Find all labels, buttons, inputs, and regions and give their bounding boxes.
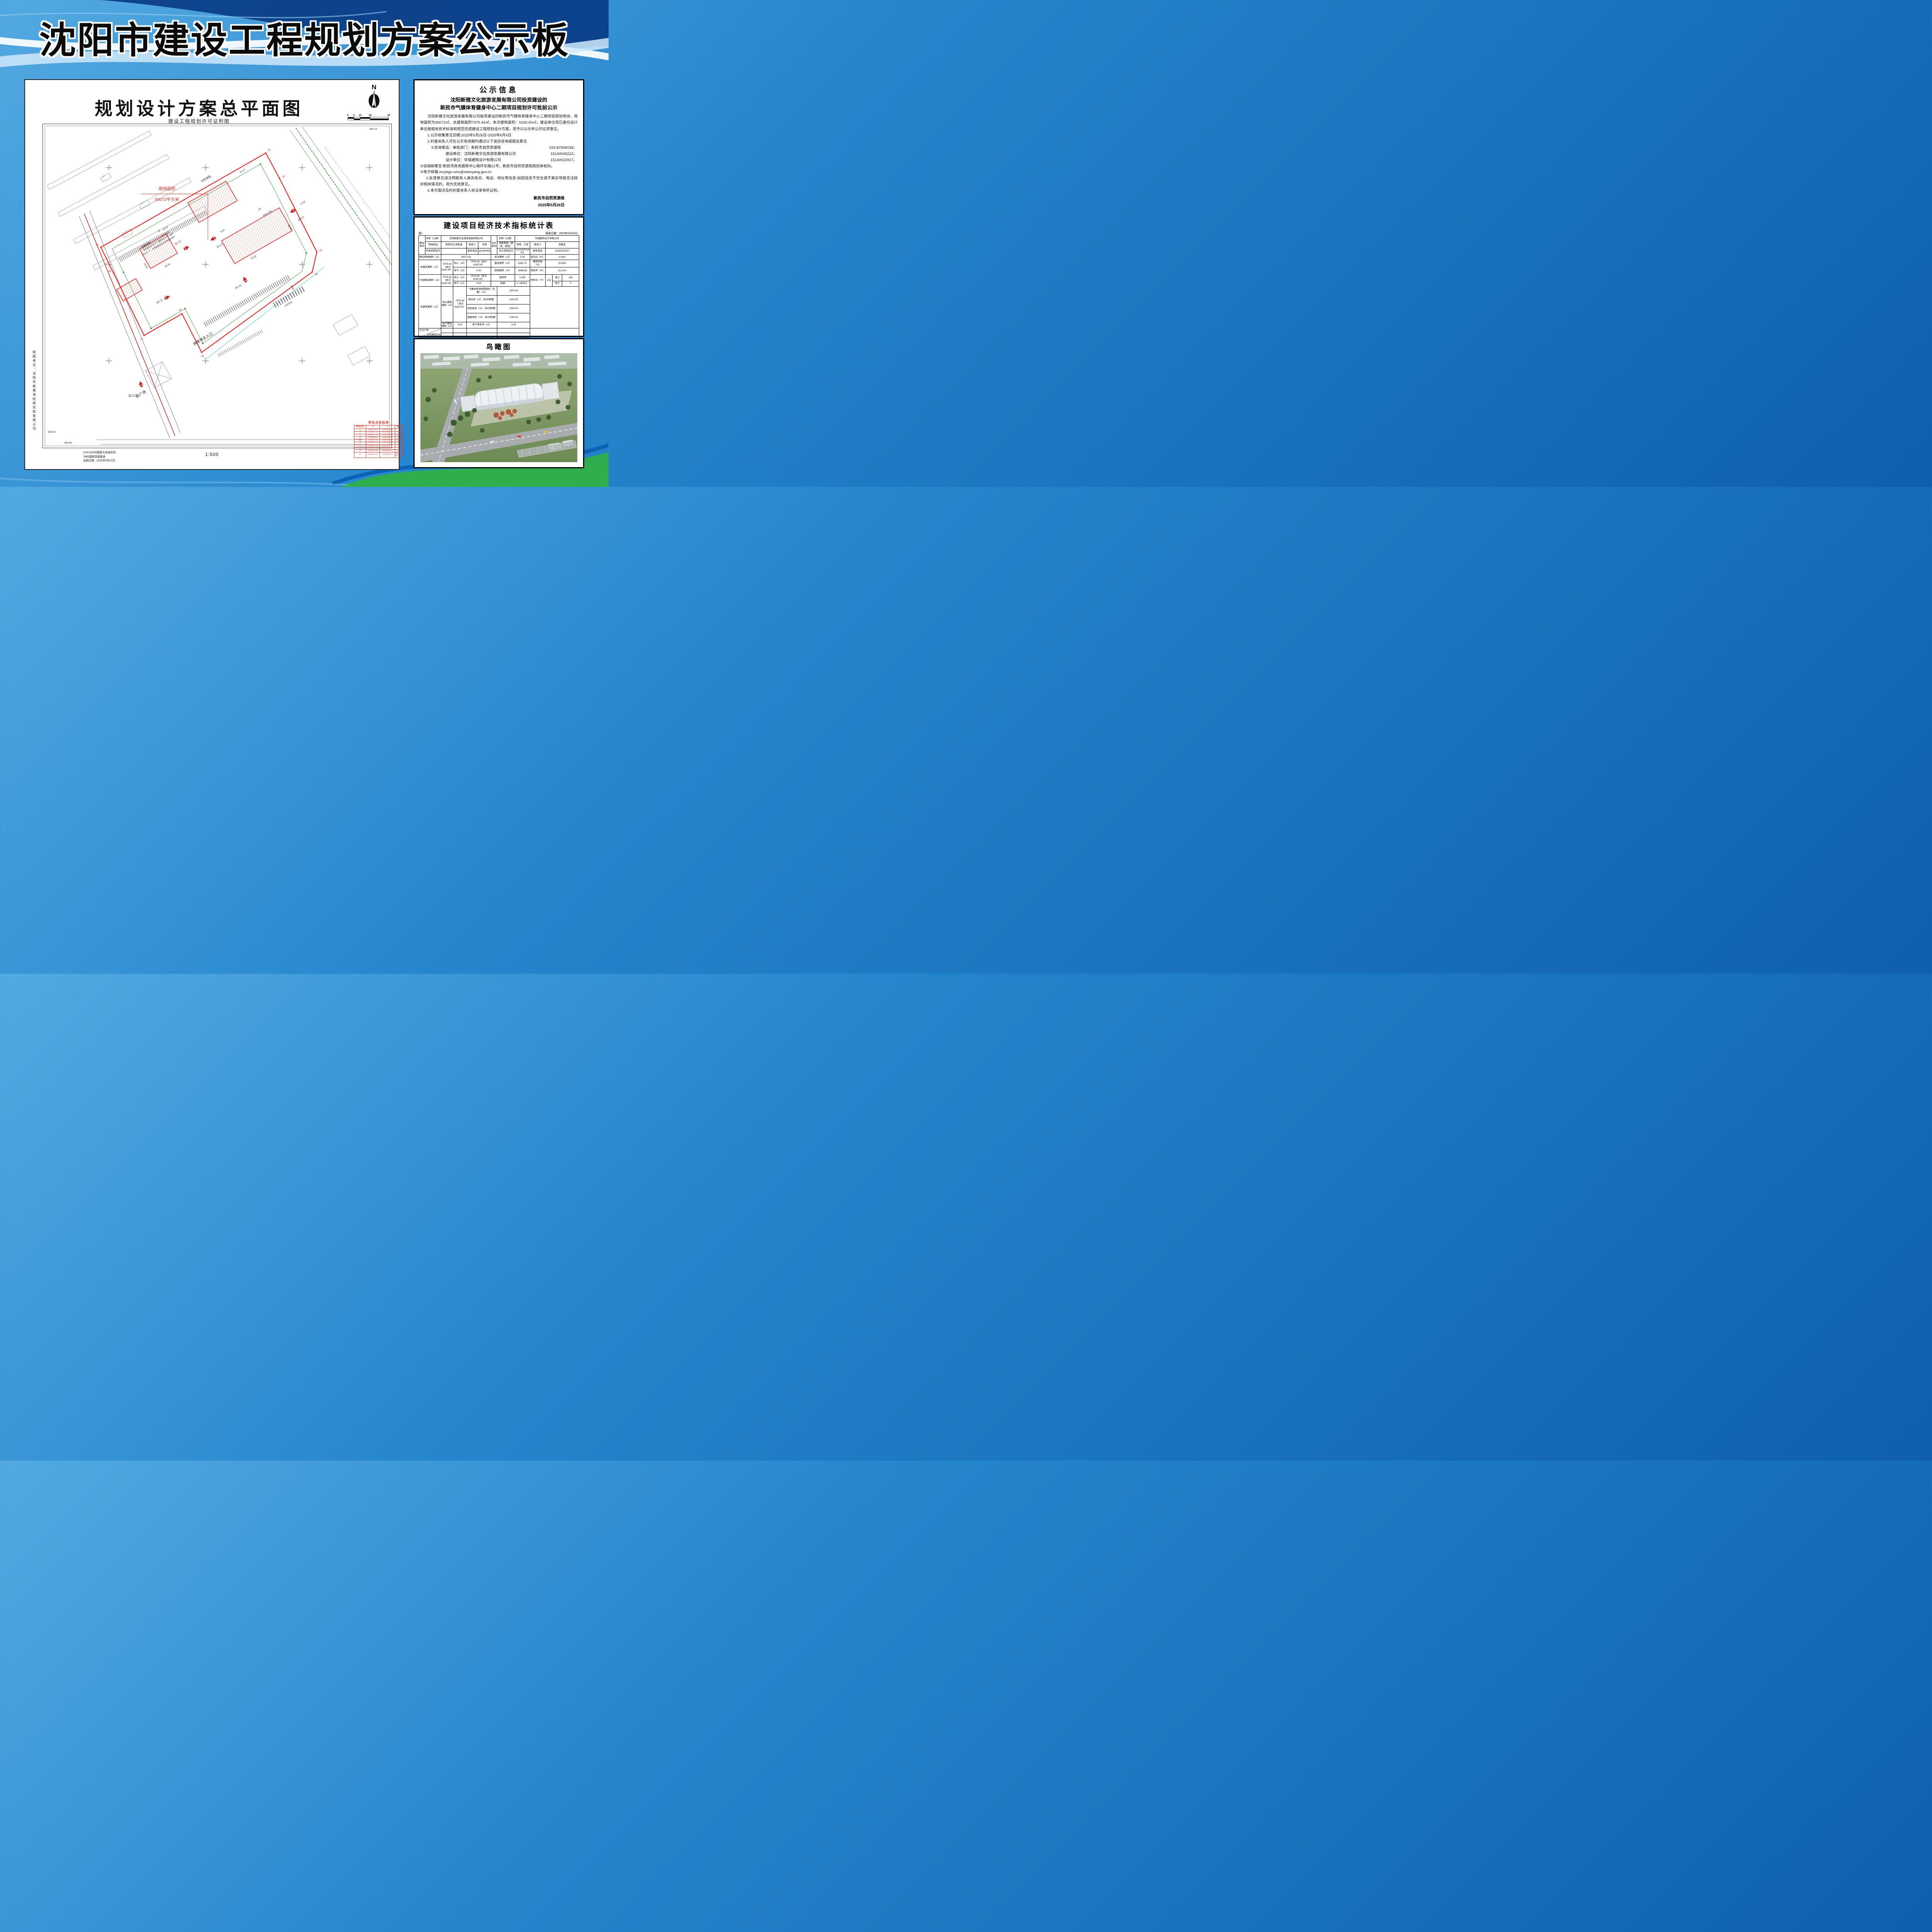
j-label: J1 [267,149,271,151]
tel-row: 建设单位：沈阳新雅文化旅游发展有限公司 15140049222； [420,151,578,157]
table-row: 项目地址新民市辽滨街道 联系人王刚 资质等级（建筑、规划）甲级、乙级 联系人陆春… [419,242,579,248]
notice-item-email: ③电子邮箱:zrzybgs-xms@shenyang.gov.cn [420,169,578,175]
svg-text:用地面积: 用地面积 [158,186,175,191]
table-row: 建设用地面积（㎡） 30072.00 商业面积（㎡） 0.00 商业比（%） 0… [419,255,579,260]
svg-text:30072平方米: 30072平方米 [155,197,179,202]
note-date: 出图日期：2025年5月22日 [83,459,116,463]
north-arrow-icon: N [362,82,386,112]
jtable-header: 界址点号 [354,425,366,429]
notice-panel: 公示信息 沈阳新雅文化旅游发展有限公司投资建设的 新民市气膜体育健身中心二期项目… [413,79,584,215]
scalebar-10: 10 [359,114,362,117]
corner-label-tr: 486.19 [369,128,377,131]
table-row: 住宅户数住宅建筑区间 [419,328,579,333]
tel-number: 15140049222； [551,151,578,157]
boundary-coordinate-table: 界址点坐标表 界址点号 X Y 距离 J14648825.6741486072.… [354,420,403,458]
scalebar-5: 5 [353,114,355,117]
jtable-header: Y [380,425,395,429]
jtable-header: X [366,425,380,429]
table-row: 总建筑面积（㎡） 地上建筑面积（㎡） 7975.44（本次6100.00） 气膜… [419,286,579,295]
j-label: J4 [314,273,318,276]
corner-label-bl2: 485.86 [64,442,72,444]
notice-item-2: 2.利害关系人可在公示有效期内通过以下途径咨询或提出意见 [420,139,578,145]
jtable-title: 界址点坐标表 [354,420,403,425]
table-row: 开发资质证号 联系电话15140049222 设计资质证号A121005316-… [419,248,579,255]
plan-scale: 1:500 [25,452,399,457]
notice-heading-2: 新民市气膜体育健身中心二期项目规划许可批前公示 [420,104,578,112]
table-row: J14648825.6741486072.35 [354,429,403,432]
north-label: N [372,83,376,91]
scalebar-0: 0 [347,114,349,117]
tel-row: ①咨询电话：审批部门：新民市自然资源局 024-87506038； [420,145,578,151]
tel-label: ①咨询电话：审批部门：新民市自然资源局 [420,145,501,151]
tel-label: 设计单位：华域建筑设计有限公司 [420,157,501,163]
plan-notes: CGCS2000国家大地坐标系 1985国家高程基准 出图日期：2025年5月2… [83,451,116,463]
j-label: J9 [95,244,99,247]
tel-number: 024-87506038； [549,145,578,151]
site-plan-panel: 规划设计方案总平面图 建设工程规划许可证附图 N 0 5 10 20 30 [24,79,400,470]
j-label: J6 [178,309,182,311]
indicators-panel: 建设项目经济技术指标统计表 表1 填表日期：2025年4月30日 建设单位 名称… [413,216,584,337]
bird-view-title: 鸟瞰图 [415,342,583,352]
notice-item-3: 3.反馈意见请注明联系人真实姓名、电话、地址等信息;如因信息不完全或不真实导致无… [420,175,578,188]
plan-title: 规划设计方案总平面图 [71,95,327,120]
scalebar-30: 30 [387,114,390,117]
table-tag: 表1 [418,231,423,235]
tel-label: 建设单位：沈阳新雅文化旅游发展有限公司 [420,151,516,157]
note-crs: CGCS2000国家大地坐标系 [83,451,116,455]
jtable-header: 距离 [395,425,403,429]
tel-row: 设计单位：华域建筑设计有限公司 15140022917。 [420,157,578,163]
bird-view-image [420,353,577,462]
j-label: J5 [201,355,204,358]
page-title: 沈阳市建设工程规划方案公示板 [0,11,609,64]
scalebar-20: 20 [369,114,372,117]
fill-date: 填表日期：2025年4月30日 [546,231,578,235]
table-row: 总建设面积（㎡） 7975.44（本次6100.00） 地上（㎡） 7975.4… [419,260,579,267]
tel-number: 15140022917。 [551,157,578,163]
notice-paragraph: 沈阳新雅文化旅游发展有限公司投资建设的新民市气膜体育健身中心二期项目规划地块，用… [420,114,578,133]
notice-item-mail: ②信函邮寄至:新民市政务服务中心南环东路21号，新民市自然资源局规划审批科。 [420,163,578,170]
j-label: J2 [282,175,285,178]
indicators-table: 建设单位 名称（公章） 沈阳新雅文化旅游发展有限公司 设计单位 名称（公章） 华… [418,235,579,343]
j-label: J8 [108,270,111,273]
scale-bar: 0 5 10 20 30 [345,113,392,122]
notice-item-1: 1.公示收集意见日期:2025年5月26日-2025年6月4日 [420,133,578,139]
notice-heading-1: 沈阳新雅文化旅游发展有限公司投资建设的 [420,96,578,104]
table-row: 计容建设面积（㎡） 7975.44（本次6100.00） 地上（㎡） 7975.… [419,275,579,281]
corner-label-bl1: 648.54 [48,431,56,434]
indicators-title: 建设项目经济技术指标统计表 [418,220,579,230]
j-label: J3 [319,249,322,252]
notice-item-4: 4.本方案涉及的利害关系人依法享有听证权。 [420,188,578,194]
table-row: 建设单位 名称（公章） 沈阳新雅文化旅游发展有限公司 设计单位 名称（公章） 华… [419,236,579,242]
notice-signer: 新民市自然资源局 [420,195,565,202]
note-datum: 1985国家高程基准 [83,455,116,459]
notice-title: 公示信息 [420,84,578,95]
plan-credit: 制图单位：沈阳市勘察测绘研究院有限公司 [32,350,36,447]
notice-sign-date: 2025年5月26日 [420,202,565,209]
bird-view-panel: 鸟瞰图 [413,338,584,468]
plan-drawing: 1F 1F 1F [43,124,392,448]
j-label: J7 [140,338,144,341]
